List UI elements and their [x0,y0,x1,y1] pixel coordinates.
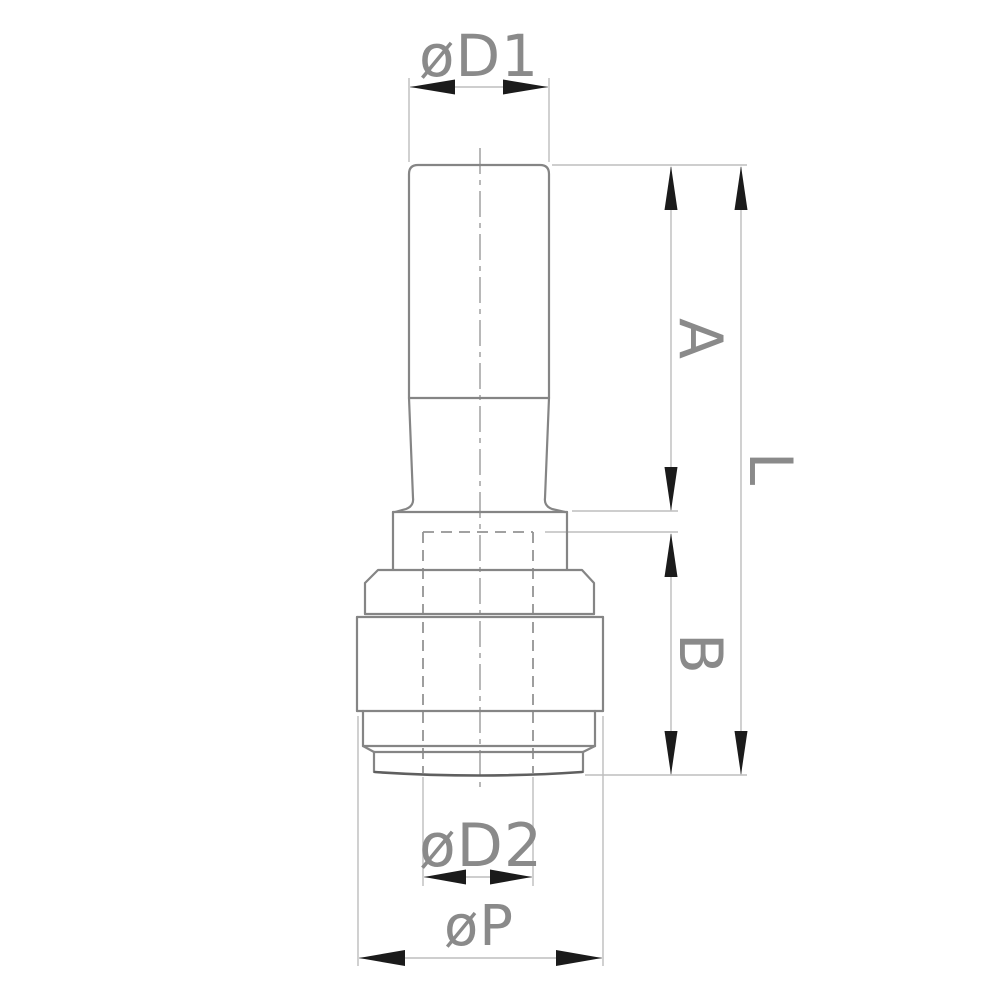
arrow-p-right [556,950,602,966]
dim-label-d2: øD2 [419,816,543,876]
stem-taper-left [395,398,413,512]
stem-tube-outline [409,165,549,398]
arrow-l-top [735,166,748,210]
arrow-l-bottom [735,731,748,775]
dim-label-d1: øD1 [419,27,539,85]
hidden-bore [423,532,533,773]
stem-taper-right [545,398,565,512]
arrow-b-bottom [665,731,678,775]
dim-label-p: øP [444,899,514,955]
dimension-lines [358,78,747,966]
arrow-p-left [359,950,405,966]
arrow-b-top [665,533,678,577]
drawing-sheet: øD1 A L B øD2 øP [0,0,1000,1000]
arrow-a-bottom [665,467,678,511]
dim-label-b: B [670,633,730,675]
arrowheads [359,80,748,967]
dim-label-a: A [670,318,730,360]
arrow-a-top [665,166,678,210]
dim-label-l: L [740,452,800,486]
bottom-face-edge [375,772,582,776]
